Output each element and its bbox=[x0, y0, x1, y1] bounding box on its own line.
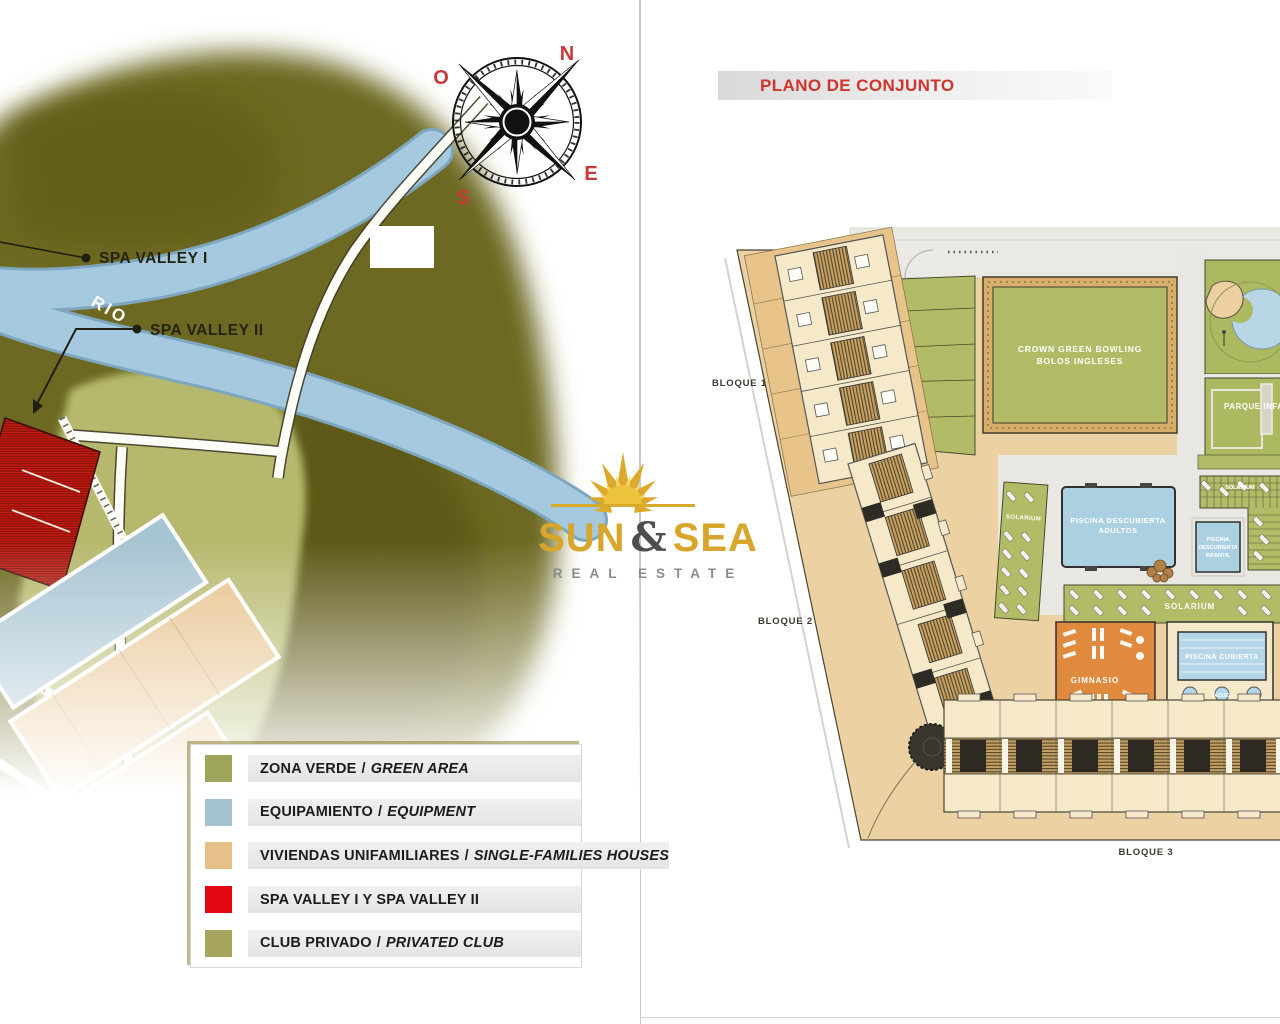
blank-label-patch bbox=[370, 226, 434, 268]
equipment-swatch bbox=[205, 799, 232, 826]
pool-kids-label-3: INFANTIL bbox=[1206, 553, 1231, 559]
spa-valley-1-label: SPA VALLEY I bbox=[99, 250, 208, 267]
private-club-swatch bbox=[205, 930, 232, 957]
block-2-label: BLOQUE 2 bbox=[758, 616, 813, 627]
block-3-building bbox=[944, 694, 1280, 818]
solarium-main-label: SOLARIUM bbox=[1165, 602, 1216, 611]
legend-item-houses: VIVIENDAS UNIFAMILIARES/SINGLE-FAMILIES … bbox=[191, 836, 581, 876]
bowling-green: CROWN GREEN BOWLING BOLOS INGLESES bbox=[983, 277, 1177, 433]
map-legend: ZONA VERDE/GREEN AREA EQUIPAMIENTO/EQUIP… bbox=[190, 744, 582, 968]
solarium-left: SOLARIUM bbox=[995, 482, 1048, 621]
bowling-label-1: CROWN GREEN BOWLING bbox=[1018, 344, 1142, 354]
pool-adults: PISCINA DESCUBIERTA ADULTOS bbox=[1062, 483, 1175, 571]
pool-kids-label-2: DESCUBIERTA bbox=[1198, 545, 1237, 551]
gym-label: GIMNASIO bbox=[1071, 676, 1119, 685]
legend-item-spa-valley: SPA VALLEY I Y SPA VALLEY II bbox=[191, 880, 581, 920]
green-area-swatch bbox=[205, 755, 232, 782]
gym-building: GIMNASIO bbox=[1056, 622, 1155, 706]
logo: SUN&SEA REAL ESTATE bbox=[538, 446, 758, 581]
spa-valley-2-label: SPA VALLEY II bbox=[150, 322, 264, 339]
solarium-top-label: SOLARIUM bbox=[1225, 485, 1255, 491]
pool-kids-label-1: PISCINA bbox=[1207, 537, 1229, 543]
compass-o: O bbox=[433, 67, 449, 89]
compass-n: N bbox=[560, 43, 574, 65]
compass-s: S bbox=[456, 187, 469, 209]
indoor-pool-building: PISCINA CUBIERTA JACUZZI bbox=[1167, 622, 1273, 706]
path-vertical bbox=[1177, 250, 1205, 455]
bowling-label-2: BOLOS INGLESES bbox=[1037, 356, 1124, 366]
jacuzzi-label: JACUZZI bbox=[1211, 693, 1233, 699]
legend-item-private-club: CLUB PRIVADO/PRIVATED CLUB bbox=[191, 923, 581, 963]
logo-subtitle: REAL ESTATE bbox=[538, 566, 758, 581]
solarium-main: SOLARIUM bbox=[1064, 585, 1280, 623]
spa-valley-swatch bbox=[205, 886, 232, 913]
block-1-label: BLOQUE 1 bbox=[712, 378, 767, 389]
playground-label: PARQUE INFANTIL bbox=[1224, 402, 1280, 411]
legend-item-equipment: EQUIPAMIENTO/EQUIPMENT bbox=[191, 792, 581, 832]
park-pond bbox=[1205, 260, 1280, 374]
compass-e: E bbox=[584, 163, 597, 185]
logo-wordmark: SUN&SEA bbox=[538, 518, 758, 558]
sun-icon bbox=[538, 446, 708, 516]
pool-adults-label-2: ADULTOS bbox=[1098, 526, 1137, 535]
houses-swatch bbox=[205, 842, 232, 869]
pool-kids: PISCINA DESCUBIERTA INFANTIL bbox=[1192, 518, 1244, 576]
pool-adults-label-1: PISCINA DESCUBIERTA bbox=[1070, 516, 1165, 525]
legend-item-green-area: ZONA VERDE/GREEN AREA bbox=[191, 749, 581, 789]
indoor-pool-label: PISCINA CUBIERTA bbox=[1185, 654, 1259, 661]
block-3-label: BLOQUE 3 bbox=[1119, 847, 1174, 858]
